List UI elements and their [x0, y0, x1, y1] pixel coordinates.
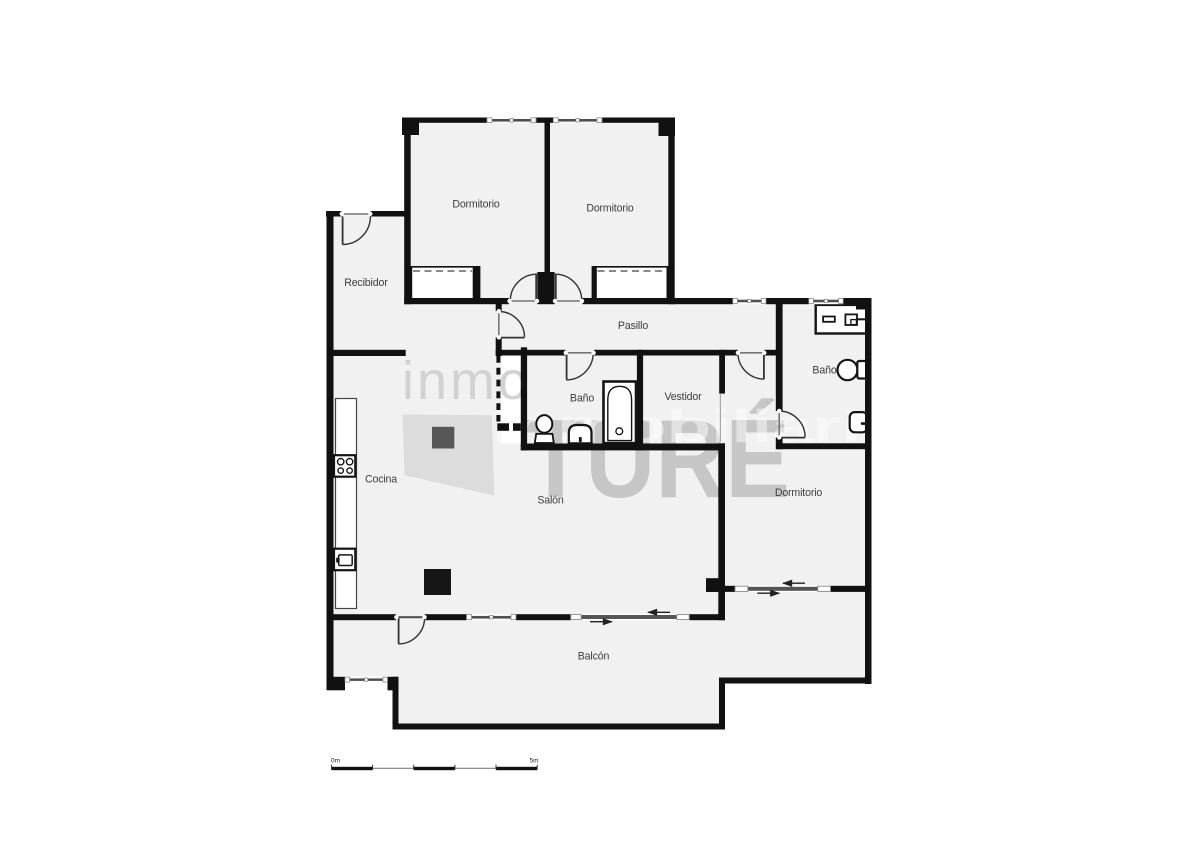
svg-text:Salón: Salón [537, 495, 564, 507]
svg-text:Pasillo: Pasillo [618, 320, 648, 332]
svg-text:5m: 5m [530, 758, 539, 765]
svg-text:Vestidor: Vestidor [664, 391, 702, 403]
svg-text:Dormitorio: Dormitorio [586, 203, 634, 215]
svg-text:Dormitorio: Dormitorio [775, 487, 823, 499]
svg-text:Recibidor: Recibidor [344, 277, 388, 289]
svg-text:Baño: Baño [812, 365, 836, 377]
svg-text:Balcón: Balcón [578, 651, 610, 663]
svg-text:Baño: Baño [570, 393, 594, 405]
svg-text:0m: 0m [331, 758, 340, 765]
svg-text:Cocina: Cocina [365, 474, 397, 486]
svg-text:Dormitorio: Dormitorio [452, 199, 500, 211]
